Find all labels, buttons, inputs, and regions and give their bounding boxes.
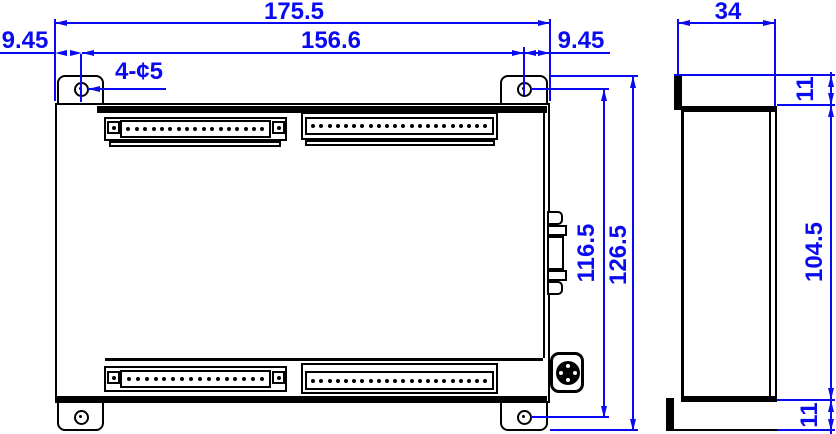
terminal-screw: [145, 377, 149, 381]
terminal-screw: [434, 379, 438, 383]
dim-text-hole-span-height: 116.5: [575, 213, 599, 293]
enclosure-bottom-edge: [57, 396, 547, 403]
terminal-screw: [177, 127, 181, 131]
terminal-screw: [426, 124, 430, 128]
terminal-screw: [467, 379, 471, 383]
terminal-screw: [369, 379, 373, 383]
terminal-screw: [360, 124, 364, 128]
terminal-screw: [451, 124, 455, 128]
terminal-screw: [180, 377, 184, 381]
mount-hole-bottom-right: [517, 410, 532, 425]
screw-circle: [112, 126, 116, 130]
arrowhead: [828, 419, 834, 431]
dim-text-overall-height: 126.5: [607, 215, 631, 295]
terminal-screw: [225, 377, 229, 381]
terminal-screw: [189, 377, 193, 381]
terminal-end-screw: [107, 371, 120, 384]
terminal-skirt-top-left: [109, 141, 281, 147]
terminal-screw: [311, 379, 315, 383]
ext-line-116-bottom: [531, 416, 609, 418]
power-connector-face: [556, 361, 580, 385]
dim-text-right-offset: 9.45: [556, 29, 606, 53]
terminal-screw: [216, 377, 220, 381]
terminal-screw: [252, 127, 256, 131]
terminal-screw: [219, 127, 223, 131]
ext-line-126-top: [550, 75, 638, 77]
terminal-screw: [360, 379, 364, 383]
terminal-screw: [244, 127, 248, 131]
arrowhead: [630, 76, 636, 88]
terminal-screw: [328, 124, 332, 128]
dim-text-hole-callout: 4-¢5: [109, 60, 169, 84]
dim-text-top-flange: 11: [794, 69, 818, 109]
terminal-screw: [260, 377, 264, 381]
terminal-screw: [328, 379, 332, 383]
terminal-screw: [467, 124, 471, 128]
ext-line-left-edge: [54, 19, 56, 101]
arrowhead: [538, 50, 550, 56]
terminal-screw: [459, 124, 463, 128]
power-pin: [566, 378, 570, 382]
arrowhead: [55, 50, 67, 56]
terminal-screw: [410, 124, 414, 128]
mount-hole-bottom-left: [74, 410, 89, 425]
arrowhead: [70, 50, 82, 56]
arrowhead: [512, 50, 524, 56]
arrowhead: [828, 388, 834, 400]
terminal-screw: [451, 379, 455, 383]
terminal-screw: [143, 127, 147, 131]
terminal-screw: [426, 379, 430, 383]
terminal-screw: [127, 377, 131, 381]
terminal-end-screw: [272, 371, 285, 384]
terminal-screw: [418, 124, 422, 128]
terminal-skirt-top-right: [305, 140, 495, 146]
terminal-screw: [160, 127, 164, 131]
terminal-row-top-left: [120, 120, 271, 138]
bottom-terminal-lip-line: [105, 358, 543, 361]
terminal-screw: [135, 127, 139, 131]
terminal-screw: [233, 377, 237, 381]
side-body-top-edge: [682, 106, 777, 112]
terminal-screw: [418, 379, 422, 383]
terminal-screw: [393, 379, 397, 383]
arrowhead: [82, 50, 94, 56]
ext-line-side-left: [677, 19, 679, 75]
terminal-screw: [198, 377, 202, 381]
ext-line-hole-top-left: [80, 54, 82, 102]
terminal-screw: [475, 124, 479, 128]
power-pin: [566, 364, 570, 368]
side-body-left-edge: [681, 106, 684, 402]
ext-line-side-right: [774, 19, 776, 106]
dim-text-left-offset: 9.45: [0, 29, 50, 53]
terminal-screw: [251, 377, 255, 381]
arrowhead: [678, 20, 690, 26]
dsub-flange-bottom: [547, 270, 567, 281]
dsub-post-top: [547, 211, 563, 225]
dsub-flange-top: [547, 225, 567, 236]
terminal-screw: [410, 379, 414, 383]
terminal-screw: [393, 124, 397, 128]
terminal-screw: [483, 124, 487, 128]
arrowhead: [538, 20, 550, 26]
terminal-row-top-right: [305, 117, 494, 135]
power-pin: [573, 371, 577, 375]
terminal-screw: [210, 127, 214, 131]
dim-line-side-chain: [830, 72, 832, 434]
dim-text-body-height: 104.5: [803, 212, 827, 292]
dim-text-depth: 34: [690, 0, 766, 24]
terminal-screw: [344, 124, 348, 128]
terminal-row-bottom-left: [120, 370, 271, 388]
terminal-screw: [171, 377, 175, 381]
terminal-screw: [336, 124, 340, 128]
arrowhead: [828, 105, 834, 117]
enclosure-right-inner-line: [543, 110, 545, 358]
terminal-screw: [459, 379, 463, 383]
terminal-screw: [152, 127, 156, 131]
terminal-screw: [442, 379, 446, 383]
screw-circle: [277, 126, 281, 130]
dim-line-126: [632, 76, 634, 431]
side-body-right-inner-line: [769, 112, 772, 396]
terminal-screw: [242, 377, 246, 381]
terminal-screw: [385, 379, 389, 383]
side-flange-bottom-line: [666, 429, 777, 431]
terminal-screw: [168, 127, 172, 131]
dimension-drawing: 175.5 156.6 9.45 9.45 4-¢5 116.5 126.5 3…: [0, 0, 836, 434]
screw-circle: [277, 376, 281, 380]
side-body-bottom-edge: [682, 396, 777, 402]
arrowhead: [601, 406, 607, 418]
terminal-screw: [336, 379, 340, 383]
terminal-screw: [126, 127, 130, 131]
terminal-screw: [235, 127, 239, 131]
arrowhead: [828, 400, 834, 412]
terminal-screw: [311, 124, 315, 128]
dim-text-overall-width: 175.5: [254, 0, 334, 24]
terminal-screw: [136, 377, 140, 381]
terminal-row-bottom-right: [305, 371, 494, 390]
terminal-screw: [352, 379, 356, 383]
terminal-screw: [154, 377, 158, 381]
terminal-screw: [401, 124, 405, 128]
terminal-screw: [385, 124, 389, 128]
terminal-screw: [227, 127, 231, 131]
terminal-end-screw: [107, 121, 120, 134]
dsub-post-bottom: [547, 281, 563, 295]
terminal-screw: [193, 127, 197, 131]
terminal-screw: [369, 124, 373, 128]
arrowhead: [828, 93, 834, 105]
terminal-end-screw: [272, 121, 285, 134]
terminal-screw: [162, 377, 166, 381]
dsub-body: [547, 236, 564, 270]
terminal-screw: [185, 127, 189, 131]
dim-text-bottom-flange: 11: [798, 395, 822, 434]
terminal-screw: [352, 124, 356, 128]
arrowhead: [828, 75, 834, 87]
arrowhead: [88, 86, 100, 92]
terminal-screw: [319, 379, 323, 383]
terminal-screw: [207, 377, 211, 381]
terminal-screw: [377, 379, 381, 383]
terminal-screw: [319, 124, 323, 128]
arrowhead: [55, 20, 67, 26]
terminal-screw: [475, 379, 479, 383]
terminal-screw: [401, 379, 405, 383]
terminal-screw: [377, 124, 381, 128]
hole-center-mark: [522, 415, 525, 418]
terminal-screw: [344, 379, 348, 383]
side-body-right-edge: [775, 106, 778, 402]
side-flange-top: [674, 75, 682, 110]
terminal-screw: [483, 379, 487, 383]
ext-line-126-bottom: [550, 429, 638, 431]
dim-text-hole-span-width: 156.6: [291, 29, 371, 53]
arrowhead: [630, 419, 636, 431]
side-flange-bottom: [666, 398, 674, 431]
arrowhead: [601, 89, 607, 101]
hole-center-mark: [79, 415, 82, 418]
power-pin: [559, 371, 563, 375]
ext-line-116-top: [531, 88, 609, 90]
arrowhead: [524, 50, 536, 56]
terminal-screw: [442, 124, 446, 128]
screw-circle: [112, 376, 116, 380]
terminal-screw: [260, 127, 264, 131]
terminal-screw: [434, 124, 438, 128]
terminal-screw: [202, 127, 206, 131]
